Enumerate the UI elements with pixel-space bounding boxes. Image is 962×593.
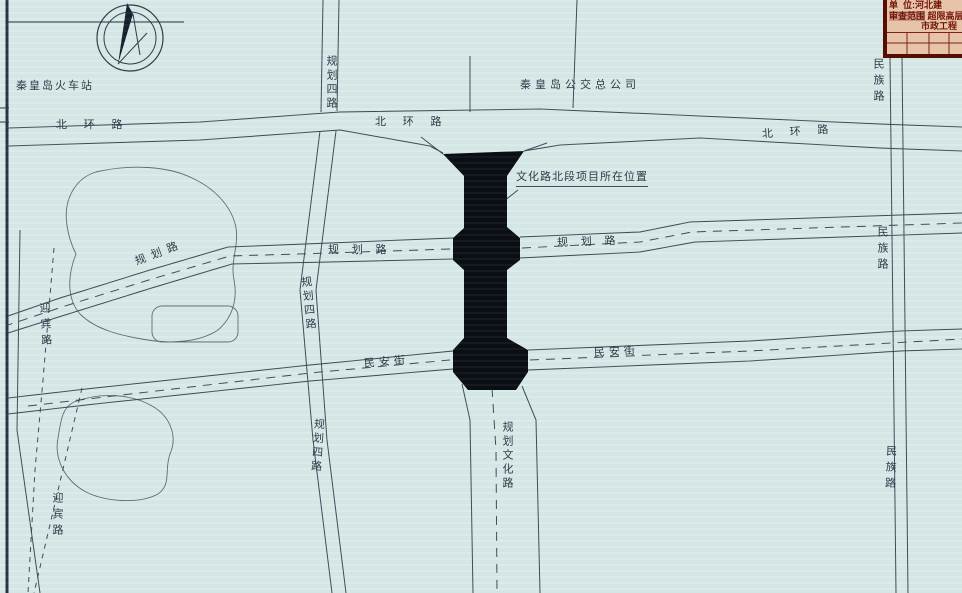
label-guihua-silu-north: 规划四路 [324, 55, 337, 111]
parcel-outlines [57, 167, 238, 500]
label-beihuan-road-west: 北 环 路 [56, 119, 130, 132]
label-beihuan-road-center: 北 环 路 [375, 116, 449, 129]
title-block-scope-row: 审查范围 超限高层 [887, 11, 962, 22]
planning-map: 秦皇岛火车站 秦皇岛公交总公司 文化路北段项目所在位置 北 环 路 北 环 路 … [0, 0, 962, 593]
label-minzu-road-mid: 民族路 [875, 226, 888, 274]
label-yingbin-road-south: 迎宾路 [50, 492, 63, 540]
label-guihua-road-center: 规 划 路 [328, 244, 392, 257]
title-block-scope-value: 超限高层 [925, 11, 962, 21]
label-guihua-wenhua-road: 规划文化路 [500, 421, 513, 491]
title-block-grid [887, 32, 962, 54]
label-minan-street-east: 民安街 [594, 345, 640, 360]
compass-rose-icon [97, 3, 163, 71]
label-yingbin-road-north: 迎宾路 [37, 302, 52, 351]
title-block-project-type: 市政工程 [887, 21, 962, 32]
label-project-location: 文化路北段项目所在位置 [516, 171, 648, 187]
title-block-unit-row: 单 位:河北建 [887, 0, 962, 11]
map-linework [0, 0, 962, 593]
label-minzu-road-north: 民族路 [871, 58, 884, 106]
title-block: 单 位:河北建 审查范围 超限高层 市政工程 [883, 0, 962, 58]
title-block-scope-label: 审查范围 [889, 11, 925, 21]
label-bus-company: 秦皇岛公交总公司 [520, 79, 640, 92]
label-railway-station: 秦皇岛火车站 [16, 80, 94, 93]
label-guihua-road-east: 规 划 路 [557, 235, 621, 250]
label-minzu-road-south: 民族路 [882, 445, 897, 493]
